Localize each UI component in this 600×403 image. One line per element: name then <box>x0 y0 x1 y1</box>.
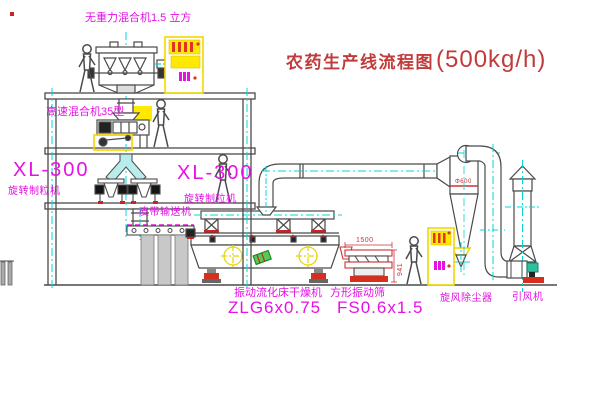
cabinet-indicator <box>179 72 190 81</box>
vibrating-screen <box>340 242 397 282</box>
dim-screen-length: 1500 <box>356 237 374 244</box>
conveyor-supports <box>141 235 188 285</box>
label-cyclone-name: 旋风除尘器 <box>440 294 493 304</box>
title-capacity: (500kg/h) <box>436 46 546 74</box>
inlet-fitting <box>186 229 195 237</box>
fluid-bed-dryer <box>186 211 342 283</box>
label-high-speed-mixer: 高速混合机35型 <box>46 107 124 118</box>
worker-figure <box>153 100 169 147</box>
flow-diagram-canvas: 农药生产线流程图 (500kg/h) 无重力混合机1.5 立方 高速混合机35型… <box>0 0 600 403</box>
label-screen-model: FS0.6x1.5 <box>337 299 424 316</box>
belt-conveyor <box>127 225 194 285</box>
fan-base <box>523 277 544 283</box>
spring-mounts <box>204 219 326 233</box>
dim-screen-height: 941 <box>397 263 404 276</box>
control-cabinet-upper <box>165 37 203 93</box>
cabinet-indicator <box>434 261 445 270</box>
induced-draft-fan <box>507 261 544 283</box>
label-granulator-right-model: XL-300 <box>177 163 254 183</box>
dim-cyclone-diameter: Φ600 <box>455 179 472 185</box>
label-fan-name: 引风机 <box>512 293 544 303</box>
label-dryer-model: ZLG6x0.75 <box>228 299 321 316</box>
label-gravity-mixer: 无重力混合机1.5 立方 <box>85 13 191 24</box>
exhaust-duct <box>257 164 462 215</box>
label-granulator-right-name: 旋转制粒机 <box>184 195 237 205</box>
dryer-feet <box>202 268 328 283</box>
label-belt-conveyor: 皮带输送机 <box>139 208 192 218</box>
granulator-right <box>128 179 160 204</box>
control-cabinet-lower <box>428 228 454 285</box>
label-granulator-left-model: XL-300 <box>13 160 90 180</box>
granulator-left <box>95 179 127 204</box>
left-edge-posts <box>1 262 12 285</box>
gravity-free-mixer <box>88 42 174 93</box>
worker-figure <box>406 237 422 284</box>
label-granulator-left-name: 旋转制粒机 <box>8 187 61 197</box>
diagram-title: 农药生产线流程图 (500kg/h) <box>286 46 546 74</box>
fan-motor <box>527 263 538 272</box>
red-mark <box>10 12 14 16</box>
title-text: 农药生产线流程图 <box>286 48 434 73</box>
